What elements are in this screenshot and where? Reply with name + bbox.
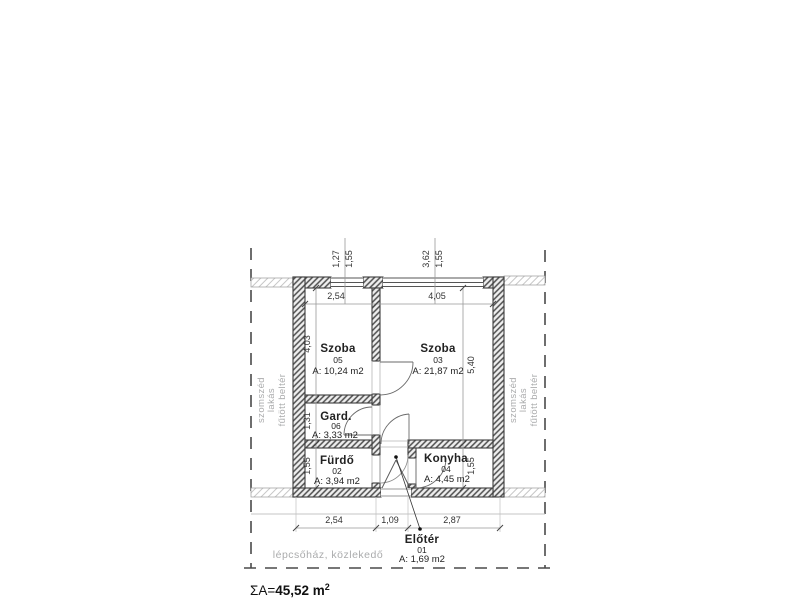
neighbor-left-line3: fűtött beltér: [277, 374, 288, 427]
neighbor-right-line2: lakás: [518, 388, 529, 412]
dim-left-furdo: 1,55: [302, 457, 312, 475]
dim-left-gard: 1,31: [302, 412, 312, 430]
room-label-szoba03: Szoba 03 A: 21,87 m2: [412, 343, 463, 377]
wall-spine-1: [372, 288, 380, 361]
wall-spine-2: [372, 394, 380, 405]
dim-window1-width: 1,27: [331, 250, 341, 268]
wall-konyha-left-upper: [408, 448, 416, 458]
room-gard-area: A: 3,33 m2: [312, 430, 358, 441]
dim-window2-width: 3,62: [421, 250, 431, 268]
wall-bottom-left: [293, 488, 381, 497]
neighbor-left-line2: lakás: [266, 388, 277, 412]
floor-plan-page: 2,54 4,05 1,27 1,55 3,62 1,55 4,03 1,31 …: [0, 0, 800, 600]
dim-window2-sill: 1,55: [434, 250, 444, 268]
room-szoba05-number: 05: [333, 355, 343, 365]
room-label-gard: Gard. 06 A: 3,33 m2: [312, 411, 358, 441]
dim-top-right-room: 4,05: [428, 291, 446, 301]
neighbor-right-line3: fűtött beltér: [529, 374, 540, 427]
floor-plan-drawing: 2,54 4,05 1,27 1,55 3,62 1,55 4,03 1,31 …: [0, 0, 800, 600]
total-area-superscript: 2: [325, 582, 330, 592]
room-furdo-area: A: 3,94 m2: [314, 476, 360, 487]
wall-szoba05-gard: [305, 395, 372, 403]
room-szoba03-area: A: 21,87 m2: [412, 366, 463, 377]
room-szoba05-area: A: 10,24 m2: [312, 366, 363, 377]
wall-spine-3: [372, 435, 380, 455]
wall-right: [493, 277, 504, 497]
door-entry: [382, 460, 410, 488]
room-konyha-number: 04: [441, 464, 451, 474]
dim-top-left-room: 2,54: [327, 291, 345, 301]
room-furdo-number: 02: [332, 466, 342, 476]
dim-bottom-a: 2,54: [325, 515, 343, 525]
windows: [331, 277, 483, 288]
room-konyha-area: A: 4,45 m2: [424, 474, 470, 485]
room-label-eloter: Előtér 01 A: 1,69 m2: [399, 534, 445, 565]
wall-top-middle: [363, 277, 383, 288]
stairwell-label: lépcsőház, közlekedő: [273, 549, 383, 561]
total-area-prefix: ΣA=: [250, 583, 275, 598]
neighbor-label-left: szomszéd lakás fűtött beltér: [256, 374, 288, 427]
wall-gard-furdo: [305, 440, 372, 448]
door-szoba03-eloter: [381, 414, 409, 444]
neighbor-label-right: szomszéd lakás fűtött beltér: [508, 374, 540, 427]
total-area-label: ΣA=45,52 m2: [250, 582, 330, 598]
room-label-furdo: Fürdő 02 A: 3,94 m2: [314, 455, 360, 487]
wall-spine-4: [372, 483, 380, 488]
dim-window1-sill: 1,55: [344, 250, 354, 268]
wall-bottom-right: [411, 488, 493, 497]
room-eloter-area: A: 1,69 m2: [399, 554, 445, 565]
door-szoba05-szoba03: [380, 362, 413, 395]
dim-bottom-c: 2,87: [443, 515, 461, 525]
door-swings: [344, 362, 446, 488]
door-furdo: [380, 455, 408, 483]
dim-bottom-b: 1,09: [381, 515, 399, 525]
room-szoba03-name: Szoba: [420, 343, 456, 355]
room-label-szoba05: Szoba 05 A: 10,24 m2: [312, 343, 363, 377]
dim-right-szoba03: 5,40: [466, 356, 476, 374]
total-area-value: 45,52 m: [275, 583, 325, 598]
wall-szoba03-konyha: [408, 440, 493, 448]
dim-left-szoba05: 4,03: [302, 335, 312, 353]
room-szoba03-number: 03: [433, 355, 443, 365]
room-szoba05-name: Szoba: [320, 343, 356, 355]
